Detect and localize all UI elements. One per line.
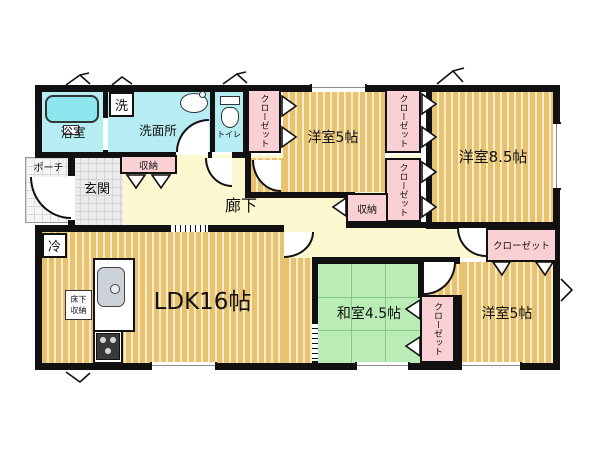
window-japanese <box>355 362 410 370</box>
entrance-storage: 収納 <box>120 155 177 174</box>
closet-door-mark <box>421 161 437 183</box>
western-room-85-label: 洋室8.5帖 <box>450 147 536 167</box>
stove-icon <box>96 333 120 360</box>
hall-storage-label: 収納 <box>357 201 377 216</box>
closet-east-label: クローゼット <box>493 238 550 252</box>
corridor-label: 廊下 <box>215 196 267 216</box>
underfloor-storage-label: 床下 <box>71 294 87 305</box>
closet-label: クローゼット <box>258 94 271 148</box>
washbasin-faucet-icon <box>199 91 206 98</box>
window-top <box>310 84 367 92</box>
bathroom-label: 浴室 <box>48 124 98 142</box>
entrance-label: 玄関 <box>74 181 120 199</box>
closet-door-mark <box>281 95 297 117</box>
closet-label: クローゼット <box>431 302 444 356</box>
washroom-label: 洗面所 <box>125 122 191 140</box>
entrance-storage-door-mark <box>151 174 171 189</box>
closet-door-mark <box>421 126 437 148</box>
closet-east-door-mark <box>492 261 511 276</box>
ldk-label: LDK16帖 <box>140 289 265 317</box>
laundry-box: 洗 <box>109 92 134 117</box>
vent-mark <box>435 66 465 86</box>
vent-mark <box>559 277 575 303</box>
underfloor-storage-label: 収納 <box>71 305 87 316</box>
closet-right-lower: クローゼット <box>385 158 421 222</box>
bath-door-gap <box>103 118 108 150</box>
window-eroom <box>460 362 522 370</box>
stove-burner-icon <box>100 337 106 343</box>
vent-mark <box>64 72 92 87</box>
tatami-line <box>318 330 420 331</box>
vent-mark <box>110 75 134 87</box>
ldk-sliding-door <box>170 225 208 232</box>
hall-storage: 収納 <box>346 193 388 223</box>
closet-right-upper: クローゼット <box>385 89 421 153</box>
kitchen-faucet-icon <box>110 284 120 294</box>
toilet-label: トイレ <box>213 129 245 141</box>
fridge-label: 冷 <box>48 236 61 255</box>
floor-plan: クローゼット クローゼット クローゼット 収納 収納 クローゼット クローゼット <box>0 0 600 450</box>
ldk-floor-east <box>284 258 312 363</box>
western-room-5-top-label: 洋室5帖 <box>300 130 366 148</box>
closet-label: クローゼット <box>397 94 410 148</box>
wall-left-upper <box>35 85 42 158</box>
stove-burner-icon <box>105 348 111 354</box>
japanese-room-label: 和室4.5帖 <box>329 305 409 324</box>
closet-east: クローゼット <box>486 228 557 262</box>
entrance-storage-door-mark <box>126 174 146 189</box>
stove-burner-icon <box>110 337 116 343</box>
bathtub-icon <box>45 95 99 123</box>
toilet-bowl-icon <box>221 107 239 128</box>
entrance-storage-label: 収納 <box>139 158 158 172</box>
closet-door-mark <box>281 126 297 148</box>
japanese-sliding-door <box>312 323 318 361</box>
western-room-5-bottom-label: 洋室5帖 <box>474 305 540 324</box>
fridge-box: 冷 <box>42 233 67 258</box>
wall-eroom-closet-east <box>455 295 462 363</box>
closet-japanese-door-mark <box>405 336 421 357</box>
window-right <box>553 122 561 190</box>
window-ldk <box>150 362 217 370</box>
closet-door-mark <box>421 93 437 115</box>
toilet-tank-icon <box>220 96 240 105</box>
vent-mark <box>64 370 92 385</box>
laundry-label: 洗 <box>115 95 128 114</box>
closet-east-door-mark <box>535 261 554 276</box>
wall-washroom-toilet <box>210 91 215 152</box>
closet-label: クローゼット <box>397 163 410 217</box>
porch-label: ポーチ <box>26 161 71 175</box>
closet-door-mark <box>421 196 437 218</box>
wall-ldk-top <box>35 225 284 232</box>
vent-mark <box>221 71 249 86</box>
closet-top-left: クローゼット <box>247 89 281 153</box>
closet-japanese: クローゼット <box>420 295 455 363</box>
tatami-line <box>318 297 420 298</box>
wall-left-lower <box>35 225 42 370</box>
underfloor-storage-box: 床下 収納 <box>65 290 92 320</box>
storage-door-mark <box>332 197 347 217</box>
